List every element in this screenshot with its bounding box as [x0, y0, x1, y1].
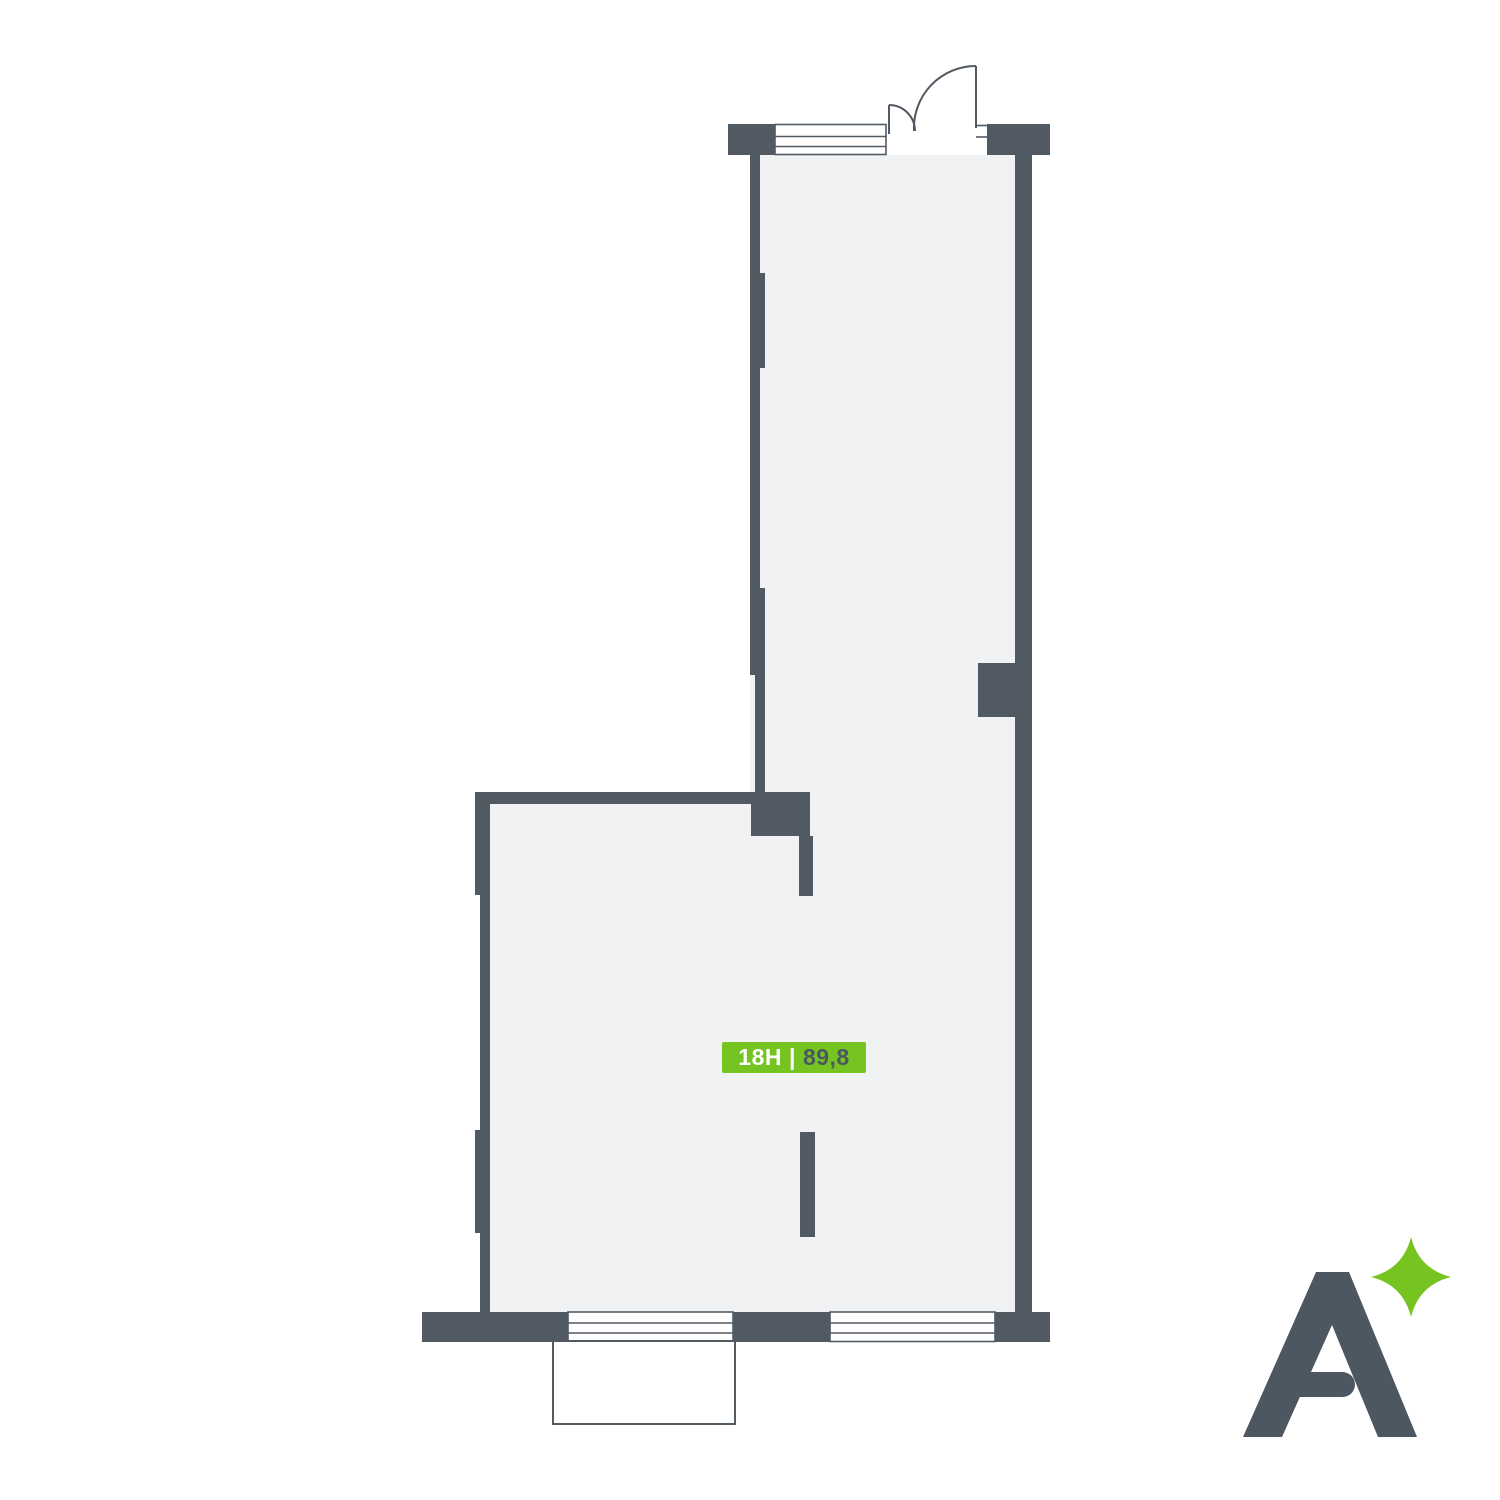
wall-segment: [733, 1312, 830, 1342]
wall-segment: [987, 124, 1050, 155]
door-opening: [886, 124, 987, 155]
wall-segment: [480, 895, 490, 1130]
wall-partition-stub: [799, 836, 813, 896]
wall-segment: [1015, 155, 1032, 1312]
wall-pilaster: [978, 663, 1015, 717]
wall-segment: [750, 368, 760, 588]
wall-segment: [750, 588, 765, 675]
unit-separator: |: [789, 1046, 796, 1069]
wall-partition: [800, 1132, 815, 1237]
brand-logo: A: [1235, 1232, 1460, 1442]
window-bottom-right: [830, 1312, 995, 1342]
window-top: [775, 125, 886, 155]
wall-segment: [480, 1233, 490, 1312]
wall-segment: [995, 1312, 1050, 1342]
logo-letter-a-crossbar: [1283, 1372, 1355, 1397]
unit-badge[interactable]: 18H | 89,8: [722, 1042, 866, 1073]
floorplan-canvas: 18H | 89,8 A: [0, 0, 1500, 1500]
unit-id: 18H: [738, 1046, 782, 1069]
wall-segment: [750, 155, 760, 273]
wall-segment: [755, 675, 765, 792]
wall-segment: [728, 124, 775, 155]
sparkle-icon: [1371, 1237, 1451, 1317]
wall-segment: [475, 792, 490, 895]
wall-segment: [750, 273, 765, 368]
unit-area-value: 89,8: [803, 1046, 850, 1069]
logo-letter-a: [1243, 1272, 1417, 1437]
balcony: [553, 1341, 735, 1424]
logo-letter-a-icon: [1235, 1232, 1460, 1442]
window-bottom-left: [568, 1312, 733, 1342]
wall-segment: [422, 1312, 568, 1342]
wall-segment: [475, 792, 762, 804]
door-swing-large: [914, 66, 976, 131]
wall-segment: [475, 1130, 490, 1233]
